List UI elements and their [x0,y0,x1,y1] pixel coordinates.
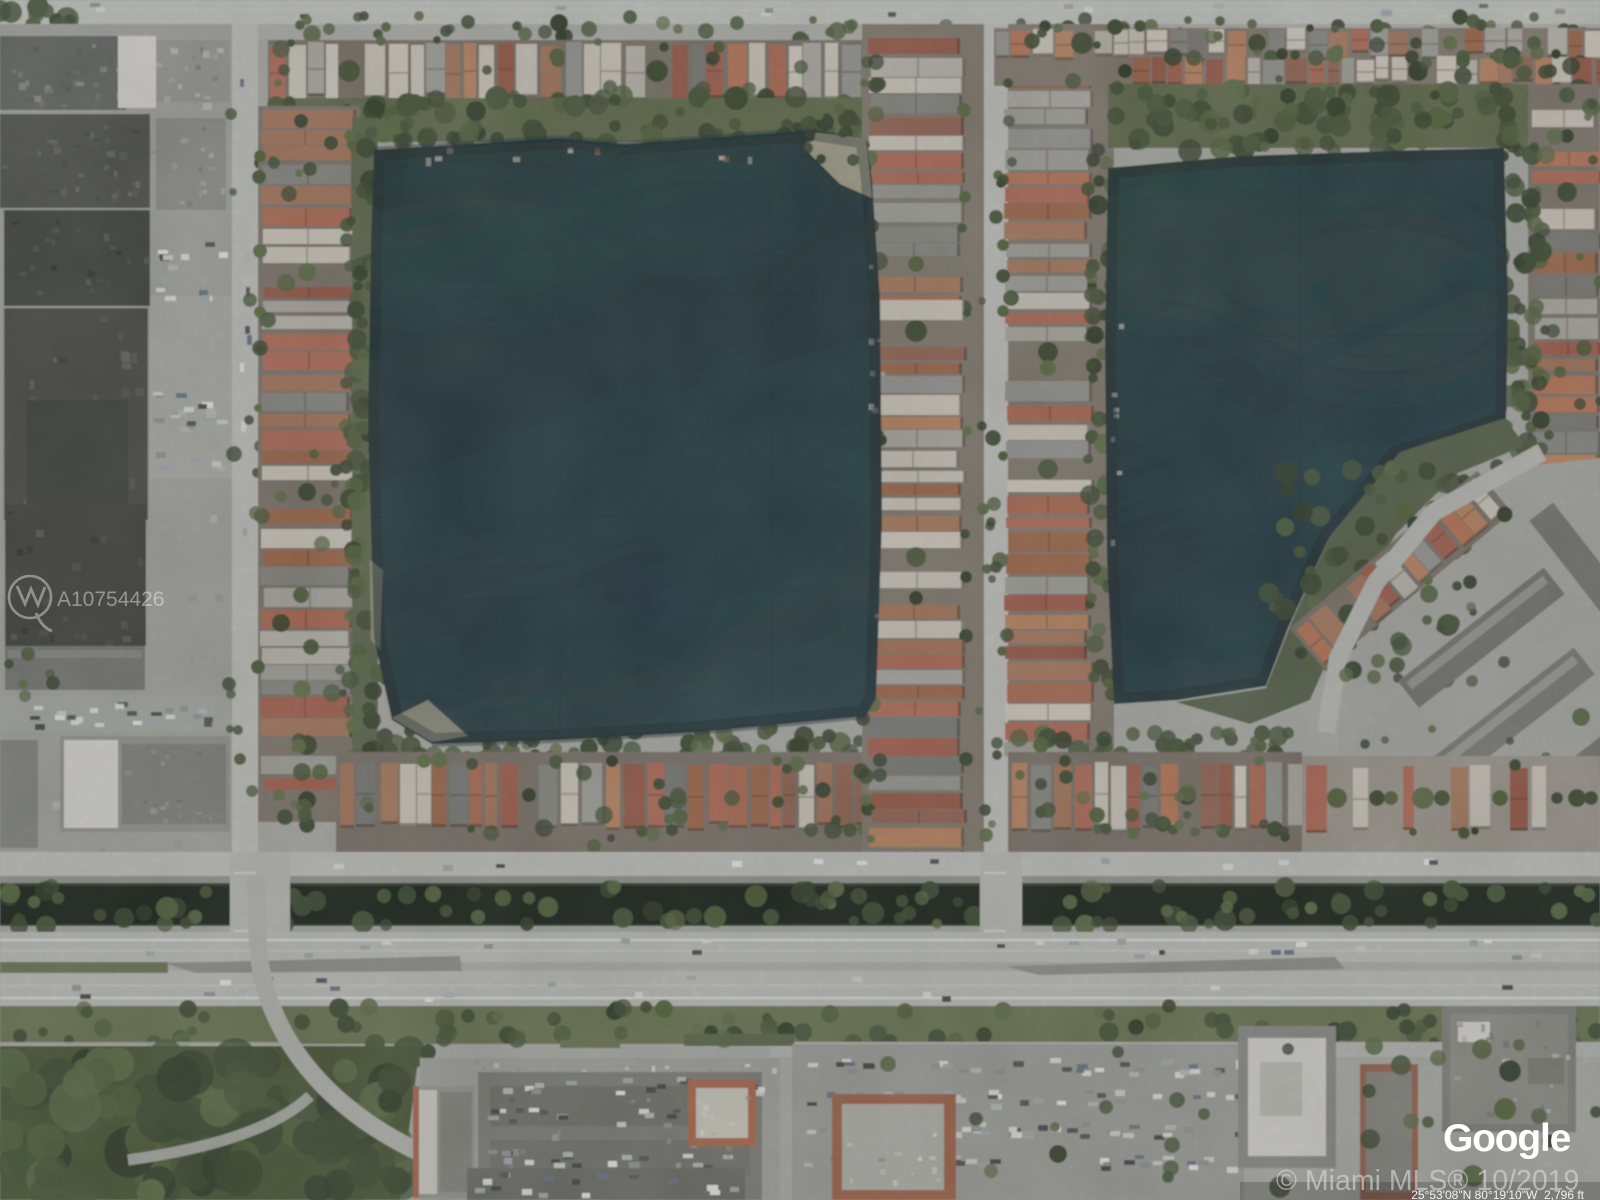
svg-text:A10754426: A10754426 [57,588,164,611]
svg-text:Google: Google [1443,1117,1571,1160]
svg-text:25°53'08"N 80°19'10"W 2,796 f: 25°53'08"N 80°19'10"W 2,796 ft [1411,1188,1584,1200]
